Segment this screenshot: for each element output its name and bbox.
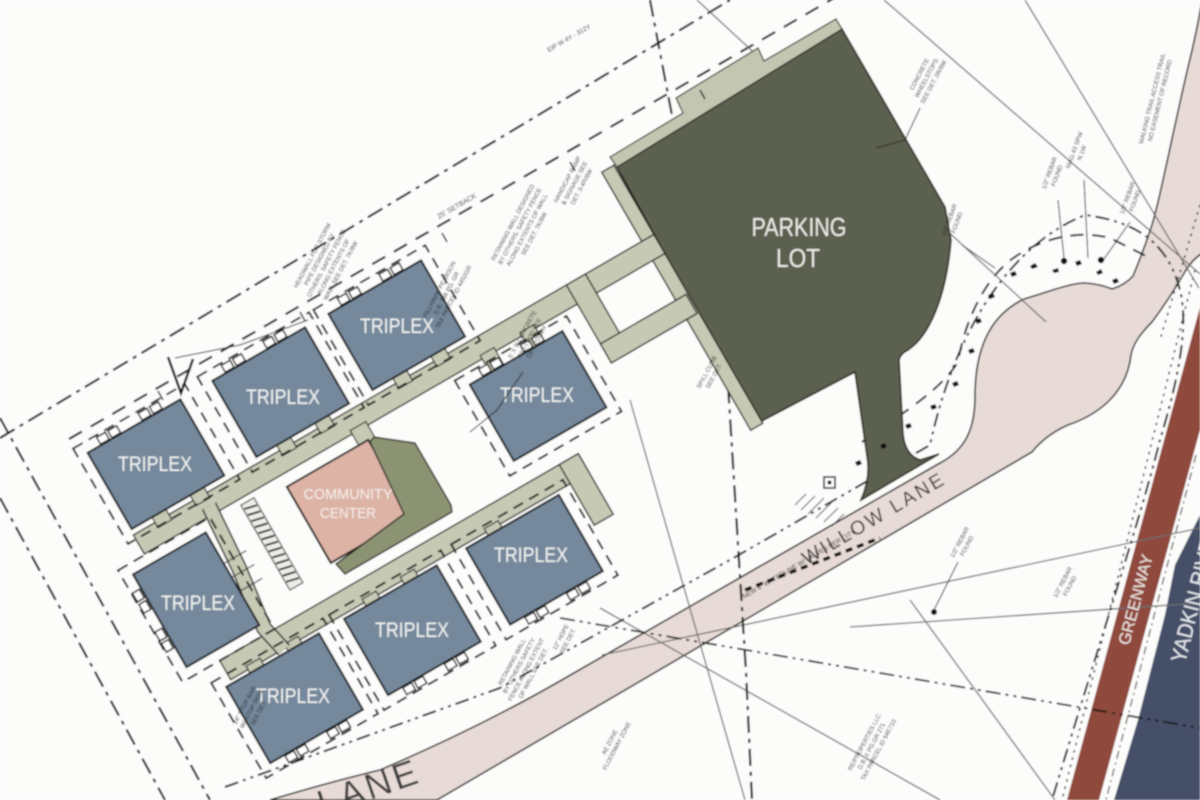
svg-text:TRIPLEX: TRIPLEX — [494, 544, 568, 567]
svg-text:TRIPLEX: TRIPLEX — [161, 592, 235, 615]
svg-text:TRIPLEX: TRIPLEX — [360, 315, 434, 338]
svg-text:TRIPLEX: TRIPLEX — [246, 386, 320, 409]
svg-text:TRIPLEX: TRIPLEX — [500, 384, 574, 407]
svg-text:LOT: LOT — [776, 243, 820, 273]
svg-text:PARKING: PARKING — [752, 212, 847, 242]
svg-text:TRIPLEX: TRIPLEX — [118, 453, 192, 476]
svg-text:TRIPLEX: TRIPLEX — [375, 619, 449, 642]
svg-text:CENTER: CENTER — [320, 506, 376, 522]
svg-text:COMMUNITY: COMMUNITY — [304, 487, 393, 503]
